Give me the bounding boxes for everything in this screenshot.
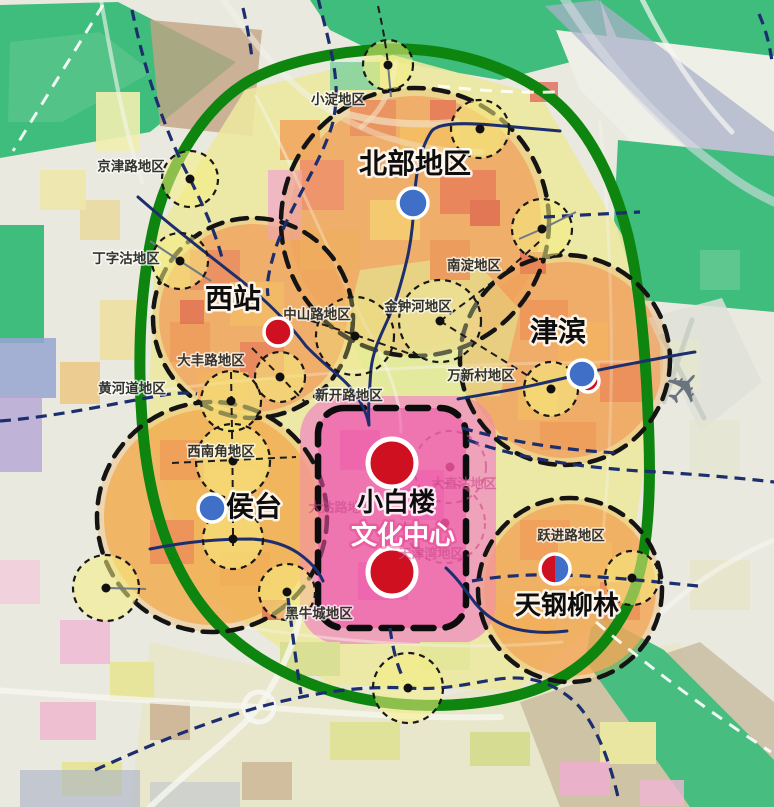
area-label-dafenglu: 大丰路地区 bbox=[177, 352, 245, 369]
red-node bbox=[368, 439, 416, 487]
area-label-dingzigu: 丁字沽地区 bbox=[92, 250, 160, 267]
planning-map-canvas: ✈ 大沽路地区大直沽地区天津湾地区 小淀地区京津路地区丁字沽地区中山路地区金钟河… bbox=[0, 0, 774, 807]
district-label-xiaobailou: 小白楼 bbox=[357, 487, 435, 518]
subcenter-dot bbox=[547, 385, 556, 394]
faint-area-label-dazhigu: 大直沽地区 bbox=[431, 476, 496, 492]
subcenter-dot bbox=[628, 574, 637, 583]
area-label-xinkailu: 新开路地区 bbox=[315, 387, 383, 404]
subcenter-dot bbox=[176, 257, 185, 266]
subcenter-dot bbox=[283, 588, 292, 597]
area-label-xiaodian: 小淀地区 bbox=[311, 91, 365, 108]
subcenter-dot bbox=[404, 684, 413, 693]
district-label-wenhuazhongxin: 文化中心 bbox=[351, 520, 455, 551]
subcenter-dot bbox=[186, 175, 195, 184]
area-label-jingjinlu: 京津路地区 bbox=[97, 158, 165, 175]
area-label-xinanjiao: 西南角地区 bbox=[187, 443, 255, 460]
area-label-jinzhonghe: 金钟河地区 bbox=[383, 298, 452, 315]
blue-node bbox=[398, 188, 428, 218]
district-label-houtai: 侯台 bbox=[226, 490, 282, 523]
area-label-zhongshanlu: 中山路地区 bbox=[283, 306, 351, 323]
district-label-beibu: 北部地区 bbox=[359, 147, 471, 180]
subcenter-dot bbox=[476, 125, 485, 134]
faint-subcenter-dot bbox=[446, 463, 455, 472]
subcenter-dot bbox=[538, 225, 547, 234]
subcenter-dot bbox=[102, 584, 111, 593]
subcenter-dot bbox=[351, 332, 360, 341]
subcenter-dot bbox=[384, 61, 393, 70]
area-label-wanxincun: 万新村地区 bbox=[446, 367, 515, 384]
area-label-yuejinlu: 跃进路地区 bbox=[537, 527, 605, 544]
subcenter-dot bbox=[227, 397, 236, 406]
area-label-heiniucheng: 黑牛城地区 bbox=[285, 605, 353, 622]
area-label-nandian: 南淀地区 bbox=[447, 257, 501, 274]
subcenter-dot bbox=[276, 373, 285, 382]
planning-map: ✈ 大沽路地区大直沽地区天津湾地区 小淀地区京津路地区丁字沽地区中山路地区金钟河… bbox=[0, 0, 774, 807]
blue-node bbox=[568, 360, 596, 388]
subcenter-dot bbox=[229, 535, 238, 544]
district-label-jinbin: 津滨 bbox=[530, 315, 586, 348]
district-label-tiangangliulin: 天钢柳林 bbox=[515, 591, 619, 621]
district-label-xizhan: 西站 bbox=[205, 282, 261, 315]
blue-node bbox=[198, 494, 226, 522]
area-label-huanghedao: 黄河道地区 bbox=[98, 380, 166, 397]
subcenter-dot bbox=[436, 317, 445, 326]
